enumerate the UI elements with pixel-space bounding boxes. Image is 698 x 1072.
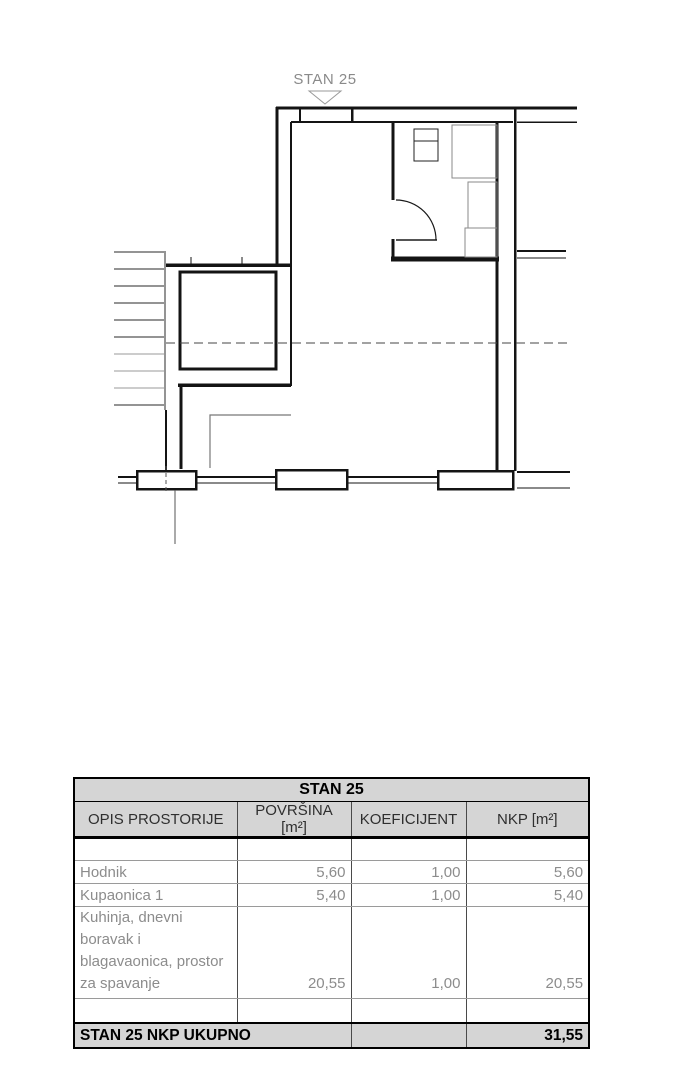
bottom-wall-windows: [118, 466, 570, 544]
plan-unit-label: STAN 25: [293, 71, 356, 88]
table-header-row: OPIS PROSTORIJE POVRŠINA [m²] KOEFICIJEN…: [74, 802, 589, 838]
spacer-row: [74, 999, 589, 1024]
sink-icon: [468, 182, 497, 228]
window-icon: [276, 470, 347, 489]
col-header-povrsina: POVRŠINA [m²]: [237, 802, 351, 838]
table-row-kuhinja: Kuhinja, dnevni boravak i blagavaonica, …: [74, 907, 589, 999]
table-row-kupaonica: Kupaonica 1 5,40 1,00 5,40: [74, 884, 589, 907]
room-name: Hodnik: [74, 861, 237, 884]
shower-icon: [452, 125, 497, 178]
room-povrsina: 20,55: [237, 907, 351, 999]
unit-label-group: STAN 25: [293, 71, 356, 104]
total-label: STAN 25 NKP UKUPNO: [74, 1023, 351, 1048]
toilet-icon: [414, 129, 438, 161]
table-total-row: STAN 25 NKP UKUPNO 31,55: [74, 1023, 589, 1048]
room-koeficijent: 1,00: [351, 861, 466, 884]
bathroom-fixtures: [452, 125, 497, 257]
room-koeficijent: 1,00: [351, 884, 466, 907]
room-povrsina: 5,40: [237, 884, 351, 907]
wall-pier: [438, 471, 513, 489]
corridor-step-line: [210, 415, 291, 468]
room-nkp: 20,55: [466, 907, 589, 999]
col-header-koeficijent: KOEFICIJENT: [351, 802, 466, 838]
spacer-row: [74, 838, 589, 861]
table-title: STAN 25: [74, 778, 589, 802]
floor-plan: STAN 25: [0, 0, 698, 760]
table-row-hodnik: Hodnik 5,60 1,00 5,60: [74, 861, 589, 884]
room-koeficijent: 1,00: [351, 907, 466, 999]
room-nkp: 5,40: [466, 884, 589, 907]
table-title-row: STAN 25: [74, 778, 589, 802]
room-nkp: 5,60: [466, 861, 589, 884]
total-nkp: 31,55: [466, 1023, 589, 1048]
room-name: Kuhinja, dnevni boravak i blagavaonica, …: [74, 907, 237, 999]
col-header-nkp: NKP [m²]: [466, 802, 589, 838]
wall-pier: [137, 471, 196, 489]
washer-icon: [465, 228, 497, 257]
down-pointer-icon: [309, 91, 341, 104]
door-swing: [396, 200, 437, 240]
room-name: Kupaonica 1: [74, 884, 237, 907]
stairs: [114, 251, 165, 410]
shaft: [180, 272, 276, 369]
area-table: STAN 25 OPIS PROSTORIJE POVRŠINA [m²] KO…: [73, 777, 590, 1049]
col-header-opis-prostorije: OPIS PROSTORIJE: [74, 802, 237, 838]
room-povrsina: 5,60: [237, 861, 351, 884]
